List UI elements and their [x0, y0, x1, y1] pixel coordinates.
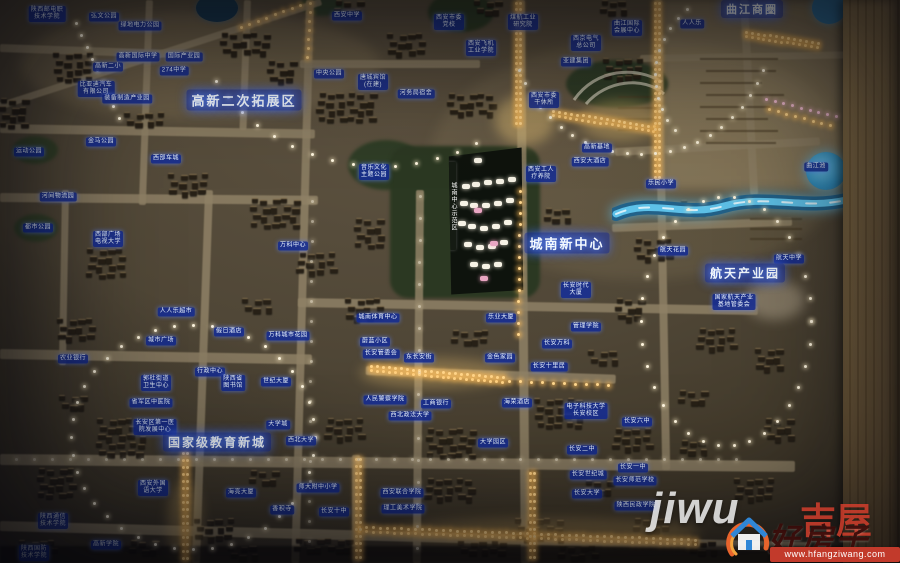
model-building [775, 436, 781, 443]
led-dot [810, 320, 813, 323]
led-dot [776, 420, 779, 423]
led-dot [587, 120, 590, 123]
led-dot [610, 540, 613, 543]
led-dot [547, 537, 550, 540]
model-building [429, 444, 437, 449]
model-building [367, 228, 375, 234]
model-building [86, 76, 92, 81]
led-dot [810, 320, 813, 323]
led-dot [137, 536, 140, 539]
led-dot [606, 118, 609, 121]
led-dot [519, 92, 522, 95]
led-dot [654, 20, 657, 23]
project-building [482, 264, 490, 269]
model-building [428, 478, 434, 483]
led-dot [647, 129, 650, 132]
model-building [546, 208, 552, 213]
led-dot [430, 370, 433, 373]
led-dot [575, 118, 578, 121]
wall-panel [843, 0, 900, 563]
led-dot [505, 531, 508, 534]
map-label: 绿地电力公园 [118, 22, 161, 31]
led-dot [483, 379, 486, 382]
model-building [458, 444, 466, 449]
led-dot [533, 542, 536, 545]
model-building [516, 534, 524, 539]
led-dot [694, 539, 697, 542]
model-building [261, 216, 267, 223]
led-dot [654, 152, 657, 155]
led-dot [308, 401, 311, 404]
map-label: 香积寺 [270, 506, 294, 515]
model-building [0, 122, 6, 127]
model-building [306, 262, 314, 268]
project-building [474, 208, 482, 213]
model-building [787, 419, 795, 424]
model-building [688, 392, 695, 397]
led-dot [475, 142, 478, 145]
model-building [355, 9, 361, 16]
model-building [535, 414, 543, 419]
model-building [624, 430, 631, 435]
model-building [290, 216, 296, 223]
led-dot [75, 22, 78, 25]
model-building [278, 78, 284, 85]
model-building [785, 427, 791, 434]
led-dot [306, 56, 309, 59]
project-building [494, 201, 502, 206]
model-building [87, 248, 93, 253]
led-dot [51, 458, 54, 461]
led-dot [186, 508, 189, 511]
led-dot [717, 458, 720, 461]
led-dot [496, 376, 499, 379]
led-dot [673, 538, 676, 541]
led-dot [428, 533, 431, 536]
model-building [369, 117, 377, 122]
model-building [612, 359, 618, 366]
model-building [224, 534, 232, 539]
model-building [528, 520, 535, 525]
led-dot [273, 135, 276, 138]
model-building [356, 218, 362, 223]
road [300, 60, 480, 68]
map-label: 国际产业园 [166, 53, 203, 62]
map-label: 西安外国 语大学 [138, 480, 168, 496]
model-building [447, 101, 454, 106]
model-building [290, 61, 298, 66]
led-dot [654, 32, 657, 35]
led-dot [357, 458, 360, 461]
model-building [696, 344, 704, 349]
map-label: 城南体育中心 [356, 314, 399, 323]
led-dot [588, 115, 591, 118]
led-dot [653, 254, 656, 257]
model-building [634, 246, 641, 251]
map-label: 大学城 [266, 421, 290, 430]
model-building [643, 520, 650, 525]
model-building [357, 1, 365, 6]
map-label: 西北政法大学 [388, 412, 431, 421]
led-dot [182, 466, 185, 469]
led-dot [635, 123, 638, 126]
model-building [618, 314, 626, 319]
map-label: 万科城市花园 [266, 332, 309, 341]
project-building [494, 262, 502, 267]
project-site[interactable]: 城南中心示范区 [444, 146, 524, 296]
map-label: 管理学院 [571, 323, 601, 332]
model-building [682, 440, 688, 445]
model-building [448, 453, 456, 458]
led-dot [310, 360, 313, 363]
led-dot [186, 487, 189, 490]
model-building [316, 108, 324, 113]
led-dot [418, 369, 421, 372]
model-building [126, 418, 132, 423]
model-building [208, 536, 214, 543]
model-building [216, 535, 223, 541]
model-building [65, 78, 72, 83]
road [0, 349, 312, 364]
led-dot [529, 486, 532, 489]
led-dot [654, 146, 657, 149]
led-dot [515, 122, 518, 125]
model-building [117, 443, 125, 448]
model-building [347, 100, 354, 105]
led-dot [654, 122, 657, 125]
led-dot [314, 436, 317, 439]
model-building [437, 496, 443, 503]
model-building [469, 454, 476, 459]
district-label: 航天产业园 [705, 264, 785, 283]
model-building [447, 437, 453, 444]
district-label: 国家级教育新城 [163, 433, 271, 452]
model-building [764, 366, 770, 373]
model-building [602, 0, 608, 5]
model-building [436, 430, 443, 435]
model-building [99, 274, 106, 279]
model-building [390, 41, 397, 46]
model-building [78, 404, 84, 411]
led-dot [310, 320, 313, 323]
model-building [317, 269, 324, 275]
led-dot [417, 481, 420, 484]
model-building [66, 476, 73, 481]
model-building [336, 93, 344, 98]
park-path-curve [566, 60, 668, 108]
model-building [647, 248, 655, 254]
led-dot [519, 86, 522, 89]
model-building [617, 298, 623, 303]
model-building [73, 77, 81, 82]
model-building [364, 220, 371, 225]
model-building [346, 539, 354, 544]
led-dot [533, 507, 536, 510]
led-dot [491, 535, 494, 538]
model-building [259, 472, 266, 477]
model-building [364, 307, 370, 314]
model-building [358, 300, 365, 305]
led-dot [515, 26, 518, 29]
model-building [537, 406, 544, 411]
led-dot [561, 538, 564, 541]
led-dot [594, 116, 597, 119]
led-dot [498, 536, 501, 539]
map-label: 西京电气 总公司 [571, 35, 601, 51]
model-building [576, 400, 583, 405]
led-dot [69, 458, 72, 461]
model-building [300, 252, 306, 257]
road [0, 454, 795, 472]
model-building [756, 495, 763, 501]
model-building [324, 434, 332, 439]
led-dot [519, 380, 522, 383]
project-building [500, 240, 508, 245]
led-dot [177, 458, 180, 461]
model-building [547, 400, 554, 405]
led-dot [549, 116, 552, 119]
model-building [251, 222, 257, 227]
led-dot [654, 2, 657, 5]
led-dot [477, 535, 480, 538]
model-building [272, 223, 280, 228]
model-building [470, 94, 478, 99]
model-building [755, 479, 763, 484]
model-building [218, 527, 224, 534]
model-building [243, 33, 251, 38]
led-dot [264, 345, 267, 348]
led-dot [70, 436, 73, 439]
led-dot [570, 113, 573, 116]
model-building [447, 487, 453, 494]
map-label: 西部广场 电视大学 [93, 231, 123, 247]
led-dot [519, 116, 522, 119]
led-dot [370, 369, 373, 372]
led-dot [265, 17, 268, 20]
model-building [552, 218, 560, 224]
model-building [605, 489, 611, 496]
led-dot [529, 535, 532, 538]
model-building [774, 357, 780, 364]
led-dot [247, 536, 250, 539]
led-dot [564, 116, 567, 119]
model-building [609, 351, 617, 356]
led-dot [647, 125, 650, 128]
led-dot [515, 116, 518, 119]
led-dot [654, 8, 657, 11]
model-building [354, 226, 361, 231]
led-dot [574, 383, 577, 386]
led-dot [412, 369, 415, 372]
model-building [657, 239, 665, 244]
led-dot [575, 534, 578, 537]
led-dot [809, 297, 812, 300]
led-dot [307, 38, 310, 41]
model-building [1, 98, 7, 103]
map-label: 省军区中医院 [129, 399, 172, 408]
model-building [22, 99, 30, 104]
road [298, 298, 758, 315]
model-building [472, 339, 478, 346]
model-building [140, 436, 146, 443]
model-building [308, 254, 315, 259]
led-dot [400, 367, 403, 370]
led-dot [303, 458, 306, 461]
led-dot [382, 370, 385, 373]
model-building [564, 414, 572, 419]
model-building [594, 482, 601, 487]
model-building [77, 61, 83, 68]
model-building [326, 102, 334, 108]
model-building [286, 77, 293, 83]
led-dot [230, 329, 233, 332]
model-building [148, 121, 154, 128]
led-dot [646, 365, 649, 368]
model-building [717, 345, 724, 351]
led-dot [359, 472, 362, 475]
model-building [655, 247, 661, 254]
led-dot [582, 534, 585, 537]
model-building [445, 495, 452, 501]
map-label: 长安大学 [572, 490, 602, 499]
model-building [336, 420, 343, 425]
model-building [317, 539, 325, 544]
led-dot [529, 507, 532, 510]
led-dot [182, 452, 185, 455]
model-building [701, 449, 707, 456]
model-building [127, 120, 134, 125]
model-building [591, 358, 598, 363]
model-building [767, 434, 775, 439]
model-building [280, 222, 286, 227]
model-building [758, 487, 764, 494]
watermark-url-banner[interactable]: www.hfangziwang.com [770, 547, 900, 562]
model-building [222, 32, 228, 37]
led-dot [519, 98, 522, 101]
led-dot [512, 532, 515, 535]
model-building [215, 519, 223, 524]
model-building [350, 108, 358, 113]
model-building [250, 206, 257, 211]
map-label: 比亚迪汽车 有限公司 [78, 81, 115, 97]
model-building [524, 536, 530, 543]
led-dot [372, 526, 375, 529]
model-building [348, 306, 355, 311]
led-dot [310, 260, 313, 263]
led-dot [533, 514, 536, 517]
led-dot [623, 125, 626, 128]
map-label: 西北大学 [286, 437, 316, 446]
led-dot [118, 117, 121, 120]
led-dot [568, 538, 571, 541]
led-dot [610, 535, 613, 538]
model-building [370, 93, 378, 98]
model-building [255, 300, 262, 305]
led-dot [331, 159, 334, 162]
glare [20, 10, 380, 120]
led-dot [519, 38, 522, 41]
model-building [60, 326, 67, 331]
led-dot [442, 376, 445, 379]
map-label: 假日酒店 [214, 328, 244, 337]
model-building [337, 436, 343, 443]
model-building [145, 113, 153, 118]
led-dot [515, 20, 518, 23]
led-dot [607, 384, 610, 387]
led-dot [600, 117, 603, 120]
road [0, 193, 318, 205]
led-dot [533, 493, 536, 496]
led-dot [645, 458, 648, 461]
model-building [348, 116, 354, 121]
model-building [424, 494, 432, 499]
model-building [486, 95, 493, 100]
model-building [680, 390, 686, 395]
led-dot [560, 126, 563, 129]
led-dot [372, 531, 375, 534]
map-label: 师大附中小学 [296, 484, 339, 493]
led-dot [449, 534, 452, 537]
map-label: 弘文公园 [89, 13, 119, 22]
led-dot [314, 436, 317, 439]
model-building [616, 428, 622, 433]
map-label: 蔚蓝小区 [360, 338, 390, 347]
model-building [633, 445, 640, 451]
led-dot [489, 380, 492, 383]
model-building [39, 468, 45, 473]
model-building [339, 101, 345, 108]
model-building [688, 450, 696, 456]
map-label: 海荣酒店 [502, 399, 532, 408]
model-building [658, 255, 665, 261]
led-dot [484, 531, 487, 534]
led-dot [515, 50, 518, 53]
model-building [777, 428, 785, 434]
led-dot [673, 542, 676, 545]
model-building [766, 418, 772, 423]
model-building [468, 488, 476, 494]
model-building [745, 488, 753, 494]
model-building [558, 536, 564, 543]
model-building [67, 70, 73, 77]
map-label: 长安六中 [622, 418, 652, 427]
led-dot [192, 324, 195, 327]
led-dot [291, 7, 294, 10]
led-dot [311, 240, 314, 243]
model-building [8, 124, 15, 129]
led-dot [515, 110, 518, 113]
model-building [377, 219, 385, 224]
model-building [547, 526, 554, 531]
map-label: 世纪大厦 [261, 378, 291, 387]
model-building [345, 435, 352, 441]
led-dot [519, 44, 522, 47]
model-building [262, 42, 270, 48]
model-building [457, 95, 464, 100]
led-dot [519, 26, 522, 29]
model-building [621, 9, 627, 16]
model-building [625, 446, 631, 453]
model-building [284, 206, 291, 211]
model-building [748, 496, 754, 503]
model-building [774, 420, 781, 425]
led-dot [359, 507, 362, 510]
model-building [492, 540, 498, 545]
led-dot [589, 539, 592, 542]
map-label: 陕西省 图书馆 [221, 375, 245, 391]
model-building [76, 327, 82, 334]
model-building [597, 490, 605, 496]
